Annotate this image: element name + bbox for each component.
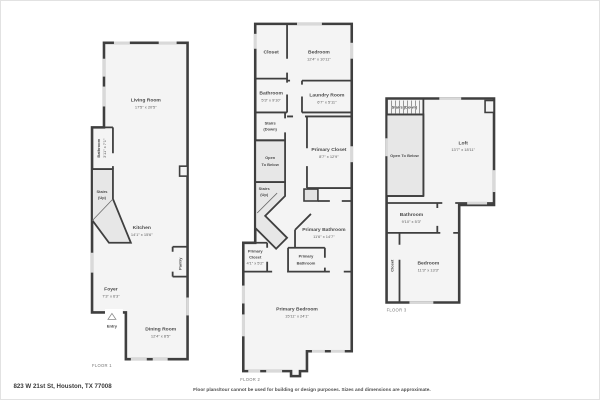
window (103, 59, 106, 77)
room-label-stairs-down-f3: Stairs (Down) (392, 104, 418, 109)
room-label-loft: Loft (458, 140, 468, 146)
window (248, 370, 260, 373)
room-label-stairs-up-f1-sub: (Up) (98, 195, 107, 200)
room-label-primary-closet-2-sub: Closet (249, 255, 262, 260)
room-dims-foyer: 7'3" x 6'3" (102, 294, 120, 299)
window (242, 286, 245, 304)
window (254, 34, 257, 49)
room-label-stairs-up-f2: Stairs (259, 186, 271, 191)
property-address: 823 W 21st St, Houston, TX 77008 (13, 383, 112, 390)
window (159, 41, 177, 44)
room-label-primary-bathroom: Primary Bathroom (302, 227, 346, 233)
floor-3-wall-chase (485, 101, 494, 113)
room-label-kitchen: Kitchen (133, 225, 151, 231)
window (439, 97, 461, 100)
floor-3-label: FLOOR 3 (387, 307, 407, 312)
room-label-bathroom-f3: Bathroom (400, 212, 424, 218)
floorplan-page: Living Room 17'5" x 20'5" Bathroom 3'11"… (0, 0, 600, 400)
window (114, 41, 130, 44)
window (312, 350, 325, 353)
floor-2-label: FLOOR 2 (240, 377, 260, 382)
window (493, 170, 496, 192)
entry-opening (105, 309, 123, 316)
room-label-living-room: Living Room (131, 97, 162, 103)
room-label-stairs-up-f2-sub: (Up) (260, 192, 269, 197)
room-label-primary-bathroom-2-sub: Bathroom (297, 261, 316, 266)
floor-1-plan: Living Room 17'5" x 20'5" Bathroom 3'11"… (91, 41, 189, 368)
window (385, 138, 388, 156)
window (186, 298, 189, 316)
room-label-primary-closet-2: Primary (248, 249, 264, 254)
room-dims-primary-bathroom: 11'6" x 14'7" (313, 234, 335, 239)
room-dims-bathroom-f3: 9'10" x 5'3" (402, 219, 422, 224)
room-label-pantry: Pantry (178, 257, 183, 270)
room-dims-bedroom-f3: 11'3" x 13'3" (418, 268, 440, 273)
floor-3-plan: Stairs (Down) Loft 13'7" x 18'11" Open T… (385, 97, 495, 312)
room-dims-loft: 13'7" x 18'11" (451, 147, 475, 152)
room-label-primary-bedroom: Primary Bedroom (276, 306, 318, 312)
floor-2-plan: Closet Bedroom 12'4" x 10'11" Bathroom 5… (240, 23, 353, 382)
room-label-dining-room: Dining Room (145, 326, 176, 332)
room-dims-dining-room: 12'4" x 8'5" (151, 333, 171, 338)
room-dims-kitchen: 14'1" x 15'6" (131, 232, 153, 237)
floor-1-label: FLOOR 1 (92, 363, 112, 368)
room-dims-bedroom-f2: 12'4" x 10'11" (307, 57, 331, 62)
window (409, 301, 433, 304)
floor-1-wall-chase (180, 166, 188, 176)
room-dims-laundry-room: 6'7" x 5'11" (317, 99, 337, 104)
window (153, 358, 168, 361)
room-label-open-to-below-f3: Open To Below (390, 153, 420, 158)
window (350, 146, 353, 162)
room-label-closet-f2: Closet (264, 50, 280, 56)
room-label-laundry-room: Laundry Room (309, 93, 345, 99)
room-label-primary-bathroom-2: Primary (299, 254, 315, 259)
room-dims-bathroom-f2: 5'3" x 9'10" (261, 97, 281, 102)
disclaimer-text: Floor plans/tour cannot be used for buil… (193, 387, 431, 393)
shower (304, 189, 318, 201)
room-dims-bathroom-f1: 3'11" x 7'1" (102, 138, 107, 158)
room-label-bathroom-f2: Bathroom (259, 91, 283, 97)
room-dims-primary-closet-2: 4'1" x 5'2" (247, 261, 265, 266)
window (297, 23, 322, 26)
window (350, 43, 353, 59)
room-label-stairs-up-f1: Stairs (96, 189, 108, 194)
window (242, 314, 245, 336)
room-label-entry: Entry (107, 323, 118, 328)
room-label-bedroom-f2: Bedroom (308, 50, 330, 56)
floorplan-canvas: Living Room 17'5" x 20'5" Bathroom 3'11"… (1, 1, 599, 399)
window (131, 358, 147, 361)
room-dims-primary-closet: 8'7" x 12'9" (319, 154, 339, 159)
window (103, 87, 106, 107)
room-label-stairs-down-f2-sub: (Down) (263, 126, 277, 131)
room-label-bedroom-f3: Bedroom (417, 261, 439, 267)
window (331, 350, 345, 353)
room-label-primary-closet: Primary Closet (311, 147, 346, 153)
room-label-stairs-down-f2: Stairs (265, 120, 277, 125)
room-label-open-to-below-f2-sub: To Below (261, 162, 279, 167)
room-label-closet-f3: Closet (390, 259, 395, 272)
room-dims-living-room: 17'5" x 20'5" (135, 104, 157, 109)
window (91, 253, 94, 273)
room-label-open-to-below-f2: Open (265, 155, 276, 160)
room-label-bathroom-f1: Bathroom (96, 138, 101, 157)
window (467, 202, 487, 205)
room-dims-primary-bedroom: 15'11" x 24'1" (285, 313, 309, 318)
room-label-foyer: Foyer (104, 287, 118, 293)
window (266, 370, 282, 373)
